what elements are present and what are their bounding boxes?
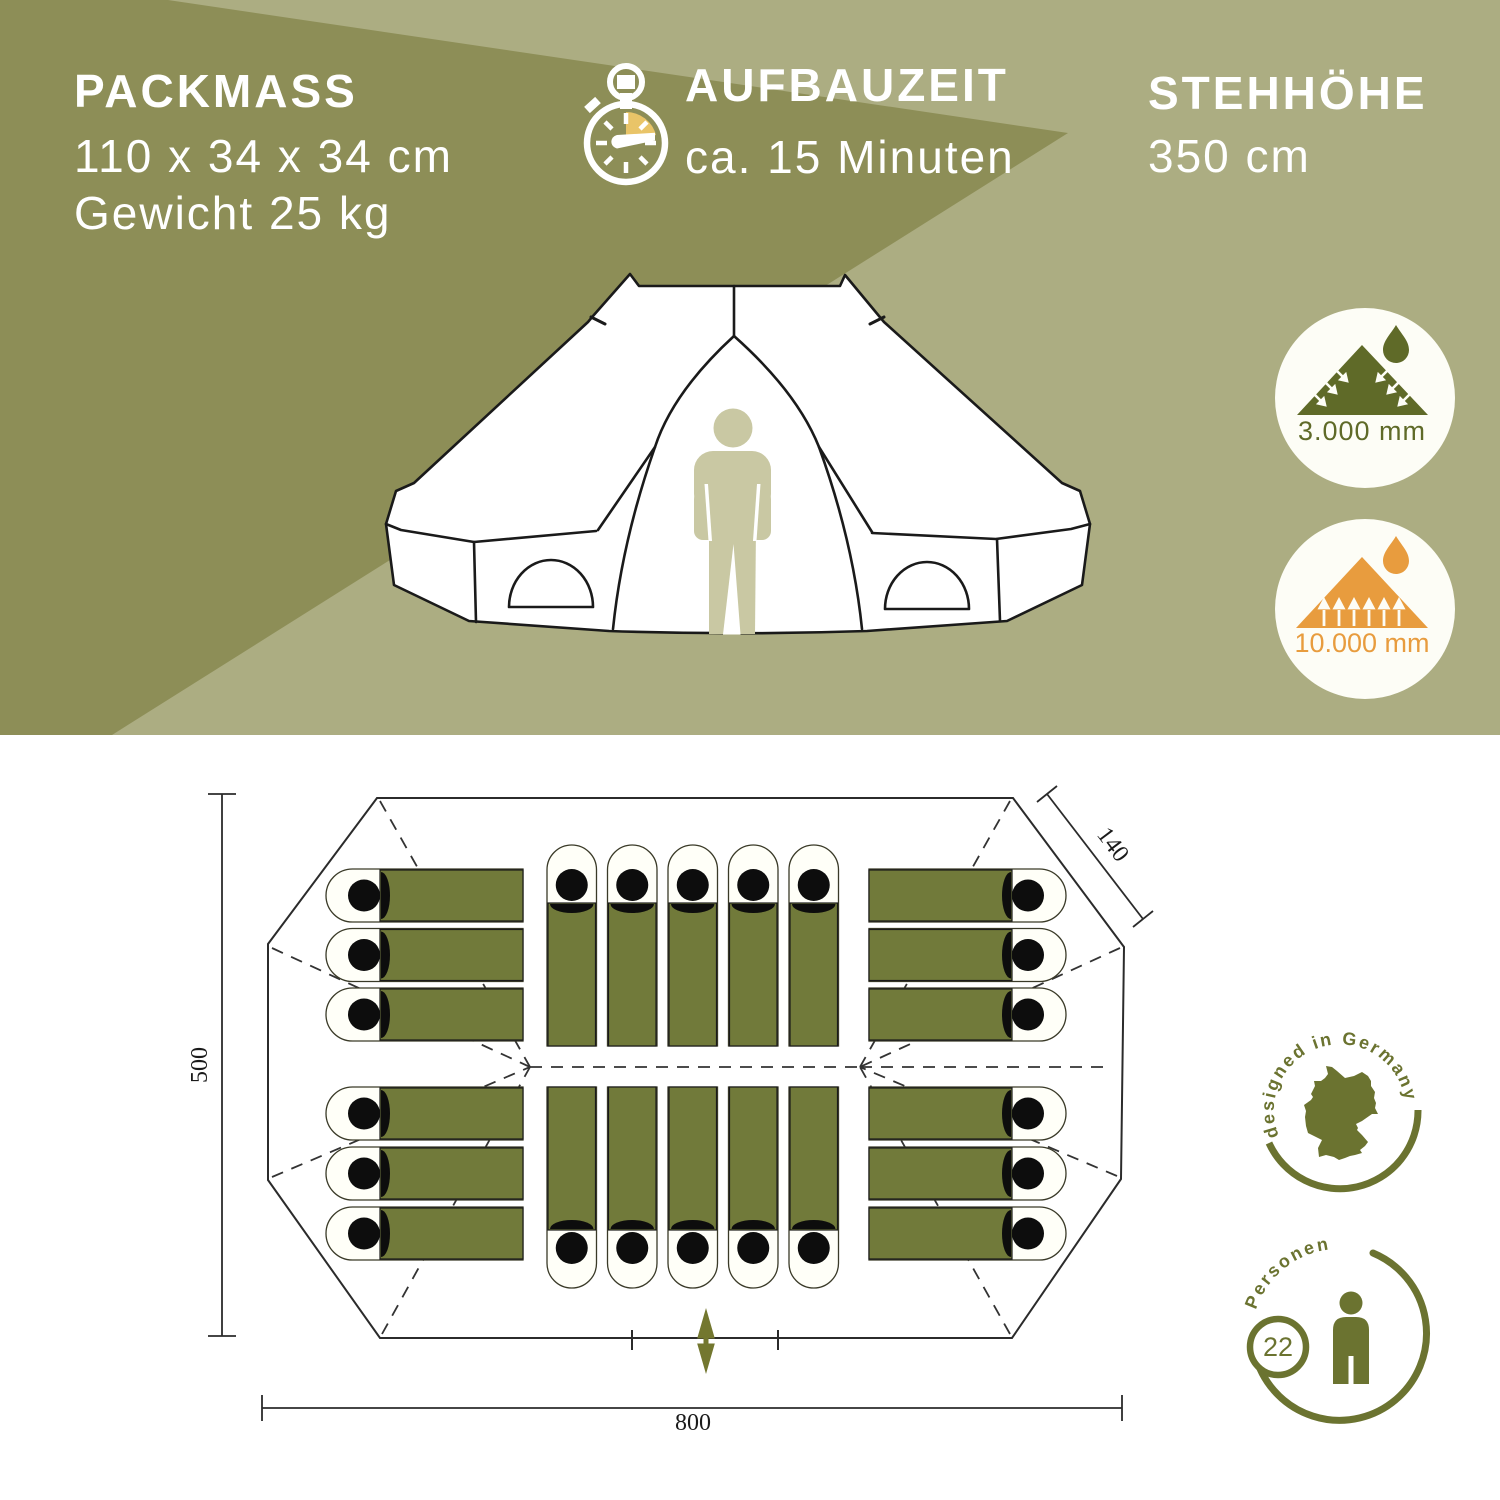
svg-text:10.000 mm: 10.000 mm [1294,628,1429,658]
svg-text:110 x 34 x 34 cm: 110 x 34 x 34 cm [74,130,453,182]
svg-text:22: 22 [1263,1332,1293,1362]
svg-text:AUFBAUZEIT: AUFBAUZEIT [685,59,1009,111]
svg-text:500: 500 [187,1047,213,1083]
svg-text:Gewicht 25 kg: Gewicht 25 kg [74,187,391,239]
svg-text:350 cm: 350 cm [1148,130,1311,182]
svg-text:ca. 15 Minuten: ca. 15 Minuten [685,131,1015,183]
svg-text:STEHHÖHE: STEHHÖHE [1148,67,1428,119]
svg-text:3.000 mm: 3.000 mm [1298,416,1426,446]
svg-text:800: 800 [675,1410,711,1436]
svg-text:PACKMASS: PACKMASS [74,65,358,117]
